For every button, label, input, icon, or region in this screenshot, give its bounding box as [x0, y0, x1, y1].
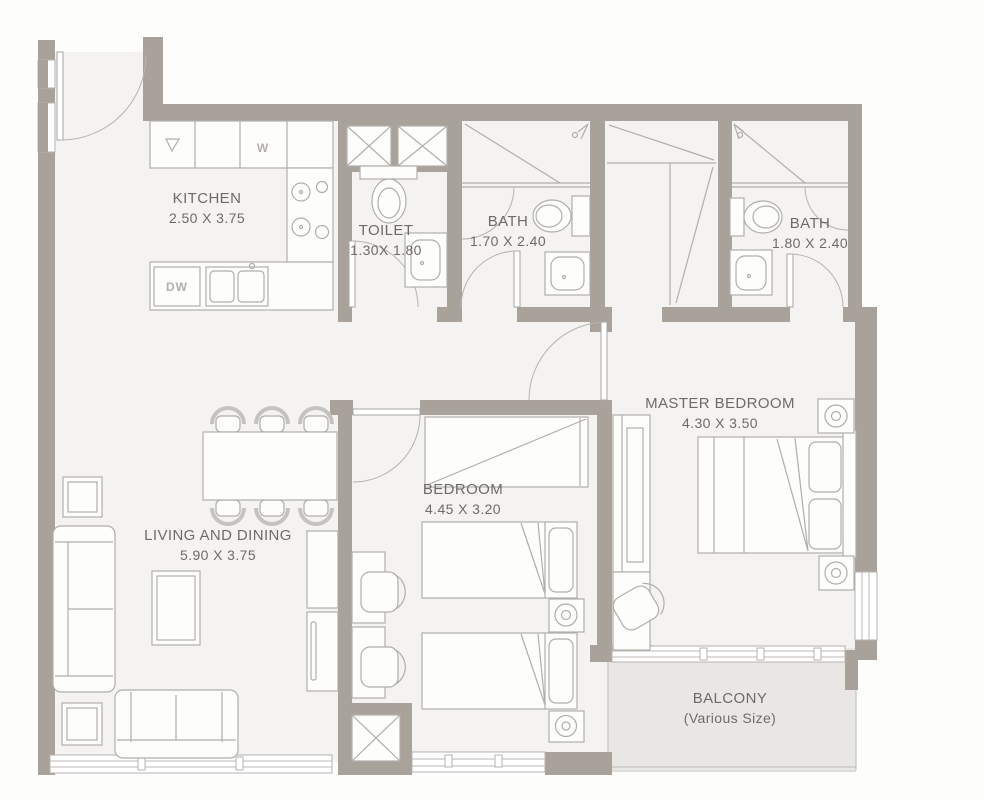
room-label-toilet: TOILET 1.30X 1.80	[350, 221, 422, 259]
duct-shaft-3	[352, 715, 400, 761]
kitchen-counter: DW	[150, 262, 333, 310]
window-left-2	[38, 103, 55, 152]
bedroom-wardrobe	[425, 417, 588, 487]
headboard	[843, 430, 856, 558]
window-left-1	[38, 60, 55, 88]
dining-table	[203, 432, 337, 500]
side-table-2	[62, 703, 102, 745]
pillow	[549, 528, 573, 592]
room-label-balcony: BALCONY (Various Size)	[684, 689, 776, 727]
duct-shaft-1	[347, 126, 391, 166]
room-name: BEDROOM	[423, 480, 503, 500]
bedroom-nightstand-1	[549, 599, 584, 632]
master-bed	[698, 430, 856, 558]
kitchen-upper-cabinets: W	[150, 121, 333, 168]
room-name: BALCONY	[684, 689, 776, 709]
room-dims: 4.30 X 3.50	[645, 414, 795, 432]
room-label-living-dining: LIVING AND DINING 5.90 X 3.75	[144, 526, 292, 564]
wall-bedroom-bottom-stub	[545, 752, 612, 775]
cooktop	[287, 168, 333, 262]
twin-bed-1	[422, 522, 577, 598]
room-label-master-bedroom: MASTER BEDROOM 4.30 X 3.50	[645, 394, 795, 432]
room-label-bedroom: BEDROOM 4.45 X 3.20	[423, 480, 503, 518]
twin-bed-2	[422, 633, 577, 709]
wall-bedroom-master	[597, 415, 612, 648]
room-name: BATH	[470, 212, 546, 232]
room-name: MASTER BEDROOM	[645, 394, 795, 414]
room-dims: 5.90 X 3.75	[144, 546, 292, 564]
room-dims: 4.45 X 3.20	[423, 500, 503, 518]
room-label-kitchen: KITCHEN 2.50 X 3.75	[169, 189, 245, 227]
wall-top	[143, 104, 862, 121]
wall-right-upper	[848, 104, 862, 307]
master-wardrobe	[613, 415, 650, 572]
room-name: LIVING AND DINING	[144, 526, 292, 546]
dishwasher-label: DW	[166, 280, 188, 294]
bedroom-nightstand-2	[549, 711, 584, 742]
floor-plan-drawing: W DW	[0, 0, 984, 800]
room-dims: 1.70 X 2.40	[470, 232, 546, 250]
wall-bedroom-top-b	[420, 400, 612, 415]
wall-bath1-right	[590, 121, 605, 322]
room-dims: 1.80 X 2.40	[772, 234, 848, 252]
room-name: BATH	[772, 214, 848, 234]
coffee-table	[152, 571, 200, 645]
wall-living-bedroom	[338, 415, 352, 703]
room-dims: (Various Size)	[684, 709, 776, 727]
master-nightstand-1	[818, 399, 854, 433]
window-master-right	[855, 572, 877, 640]
pillow	[549, 639, 573, 703]
pillow	[809, 442, 841, 492]
duct-shaft-2	[398, 126, 447, 166]
tv-icon	[311, 622, 316, 680]
wall-master-right	[855, 307, 877, 572]
room-name: KITCHEN	[169, 189, 245, 209]
wall-balcony-right-stub	[845, 650, 858, 690]
room-name: TOILET	[350, 221, 422, 241]
side-table-1	[63, 477, 102, 517]
sofa-vertical	[53, 526, 115, 692]
room-dims: 1.30X 1.80	[350, 241, 422, 259]
floor-plan: W DW	[0, 0, 984, 800]
wall-toilet-bath1	[447, 121, 462, 322]
master-nightstand-2	[819, 556, 854, 590]
room-label-bath1: BATH 1.70 X 2.40	[470, 212, 546, 250]
kitchen-sink	[206, 264, 268, 307]
bath1-basin	[545, 252, 590, 295]
room-label-bath2: BATH 1.80 X 2.40	[772, 214, 848, 252]
wall-bedroom-top-a	[330, 400, 353, 415]
pillow	[809, 499, 841, 549]
window-bedroom-bottom	[412, 752, 545, 772]
room-dims: 2.50 X 3.75	[169, 209, 245, 227]
bath2-basin	[730, 250, 772, 295]
washer-icon-label: W	[257, 141, 269, 155]
sofa-horizontal	[115, 690, 238, 758]
